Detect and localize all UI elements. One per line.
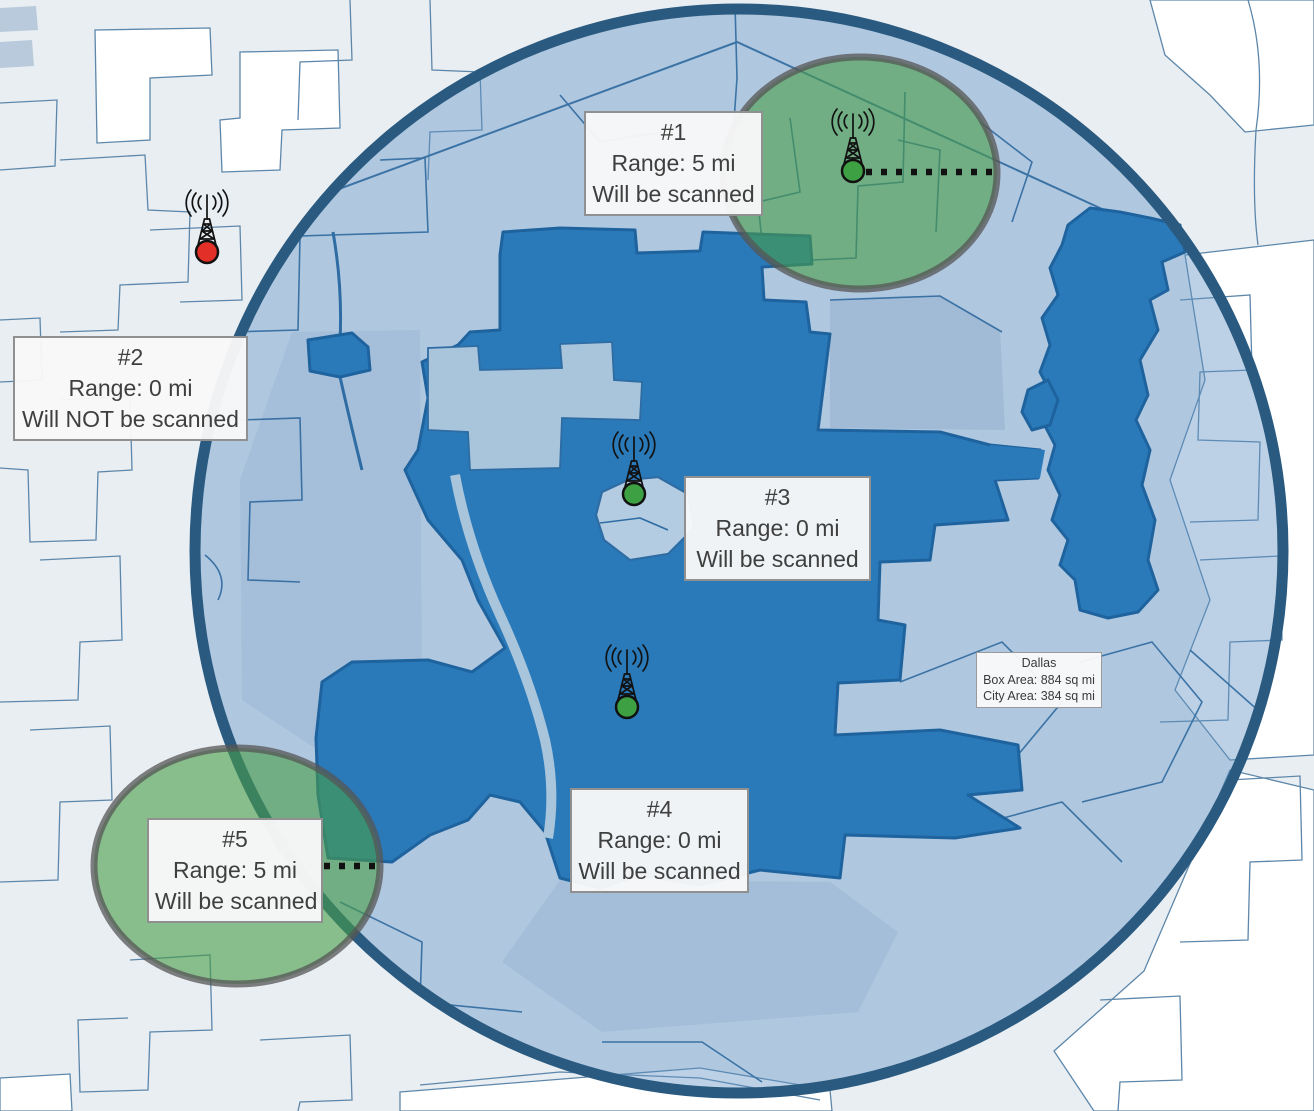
tower-label-1: #1 Range: 5 mi Will be scanned	[584, 111, 763, 216]
tower-status: Will be scanned	[578, 856, 741, 887]
city-area: City Area: 384 sq mi	[981, 688, 1097, 705]
tower-range: Range: 5 mi	[155, 855, 315, 886]
tower-range: Range: 5 mi	[592, 148, 755, 179]
tower-dot-3	[623, 483, 645, 505]
tower-id: #1	[592, 117, 755, 148]
tower-dot-1	[842, 160, 864, 182]
tower-status: Will be scanned	[692, 544, 863, 575]
tower-id: #5	[155, 824, 315, 855]
city-name: Dallas	[981, 655, 1097, 672]
tower-range: Range: 0 mi	[578, 825, 741, 856]
city-enclave-nw	[308, 333, 370, 377]
tower-label-3: #3 Range: 0 mi Will be scanned	[684, 476, 871, 581]
tower-id: #4	[578, 794, 741, 825]
tower-label-5: #5 Range: 5 mi Will be scanned	[147, 818, 323, 923]
city-info-box: Dallas Box Area: 884 sq mi City Area: 38…	[976, 652, 1102, 708]
tower-label-4: #4 Range: 0 mi Will be scanned	[570, 788, 749, 893]
tower-label-2: #2 Range: 0 mi Will NOT be scanned	[13, 336, 248, 441]
tower-id: #2	[21, 342, 240, 373]
tower-range: Range: 0 mi	[692, 513, 863, 544]
tower-dot-4	[616, 696, 638, 718]
tower-status: Will be scanned	[155, 886, 315, 917]
tower-status: Will NOT be scanned	[21, 404, 240, 435]
map-viewport[interactable]: #1 Range: 5 mi Will be scanned #2 Range:…	[0, 0, 1314, 1111]
tower-status: Will be scanned	[592, 179, 755, 210]
tower-dot-2	[196, 241, 218, 263]
city-box-area: Box Area: 884 sq mi	[981, 672, 1097, 689]
tower-range: Range: 0 mi	[21, 373, 240, 404]
tower-id: #3	[692, 482, 863, 513]
